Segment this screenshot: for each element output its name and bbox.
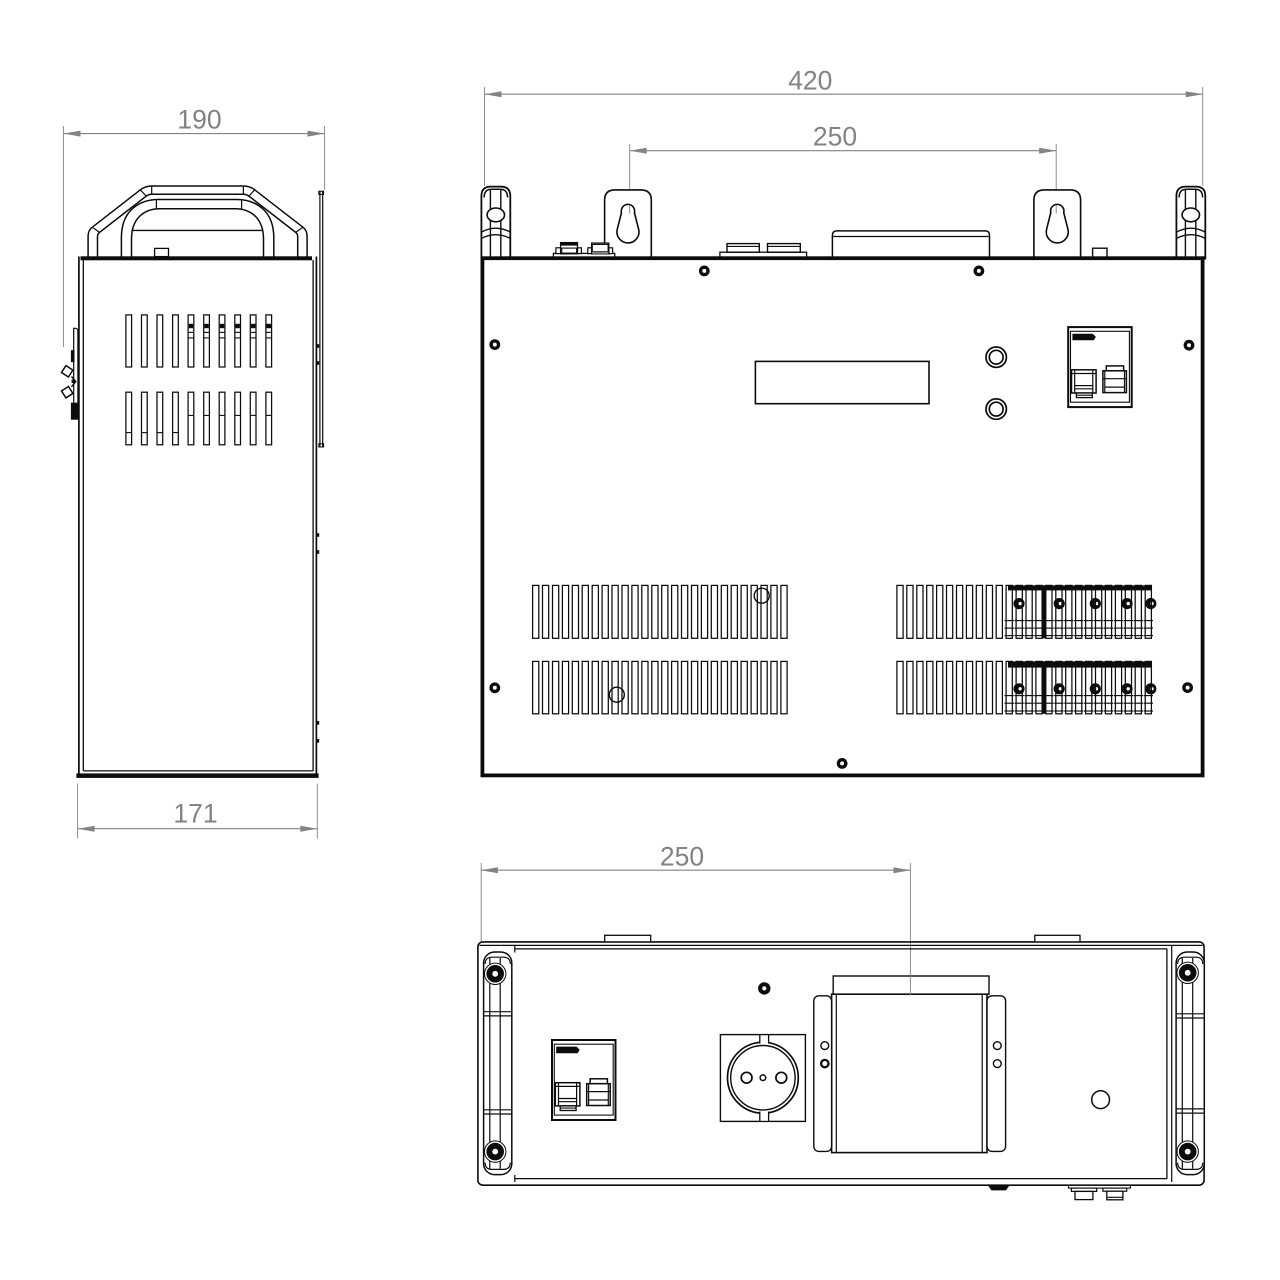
svg-text:171: 171 xyxy=(173,799,217,829)
svg-text:250: 250 xyxy=(660,841,704,871)
svg-text:250: 250 xyxy=(813,122,857,152)
svg-text:420: 420 xyxy=(788,65,832,95)
svg-text:190: 190 xyxy=(177,104,221,134)
